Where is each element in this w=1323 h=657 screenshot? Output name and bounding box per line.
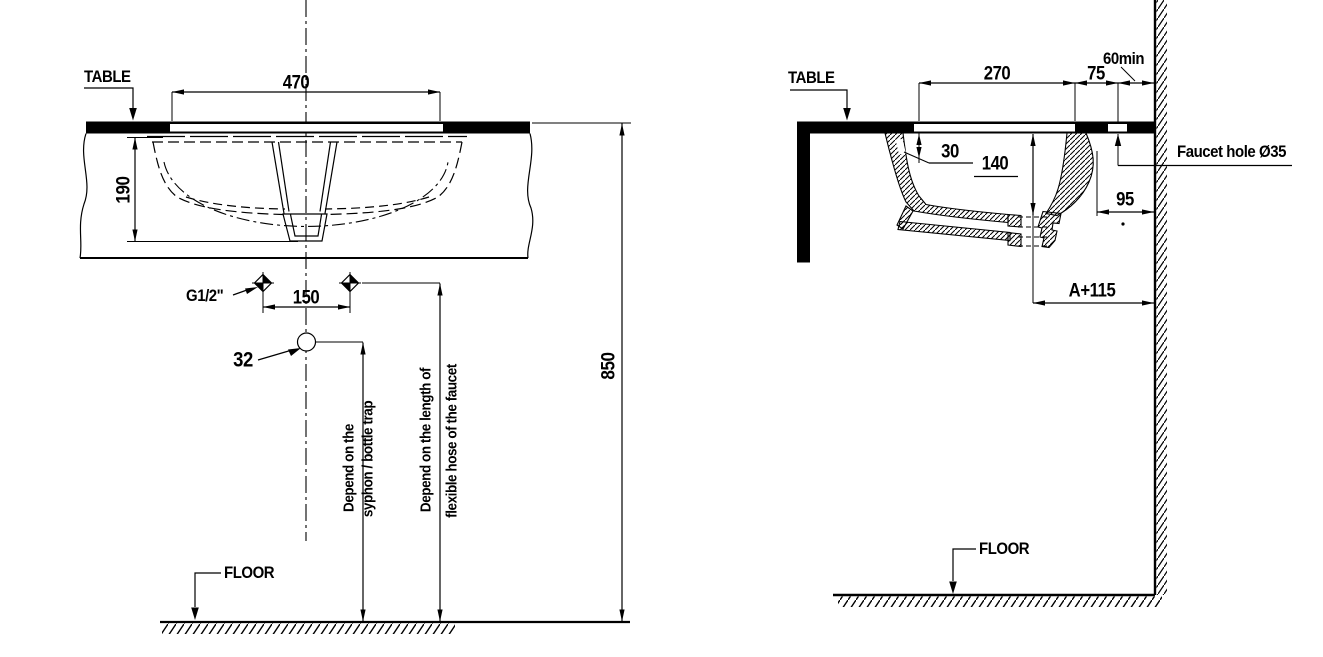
side-table-leader (790, 90, 851, 121)
side-floor-label: FLOOR (979, 540, 1029, 557)
front-table-leader (84, 88, 137, 121)
front-note-hose-line1: Depend on the length of (419, 368, 434, 512)
front-drain-outlet (258, 333, 316, 360)
front-note-hose-line2: flexible hose of the faucet (445, 364, 460, 518)
front-dim-190 (127, 138, 298, 242)
side-faucet-hole (1108, 124, 1127, 132)
front-table-label: TABLE (84, 68, 131, 85)
front-dim-150-text: 150 (293, 289, 320, 308)
front-dim-850-text: 850 (600, 352, 619, 379)
side-table-label: TABLE (788, 69, 835, 86)
side-faucet-hole-label: Faucet hole Ø35 (1177, 143, 1286, 160)
side-countertop (797, 122, 1154, 263)
side-dim-270-75-60 (919, 67, 1154, 122)
front-floor-label: FLOOR (224, 564, 274, 581)
front-floor (160, 573, 630, 634)
front-note-syphon-line1: Depend on the (342, 424, 357, 512)
installation-drawing: TABLE 470 190 G1/2" 150 32 Depend on the… (0, 0, 1323, 657)
side-dim-270-text: 270 (984, 65, 1011, 84)
front-dim-190-text: 190 (115, 176, 134, 203)
front-note-syphon-line2: syphon / bottle trap (361, 401, 376, 517)
side-basin-section (885, 133, 1125, 248)
side-dim-a115-text: A+115 (1069, 282, 1116, 301)
drawing-linework (0, 0, 1323, 657)
side-dim-60min-text: 60min (1103, 50, 1144, 67)
side-dim-95-text: 95 (1116, 191, 1134, 210)
front-basin-hidden-outline (147, 137, 467, 227)
side-wall (1155, 0, 1167, 595)
side-dim-30 (904, 133, 973, 163)
side-view-drawing (790, 0, 1292, 607)
front-drain-label: 32 (233, 350, 253, 371)
side-dim-30-text: 30 (941, 143, 959, 162)
front-supply-label: G1/2" (186, 287, 223, 304)
front-dim-470-text: 470 (283, 74, 310, 93)
side-dim-140-text: 140 (982, 155, 1009, 174)
front-view-drawing (80, 0, 631, 634)
